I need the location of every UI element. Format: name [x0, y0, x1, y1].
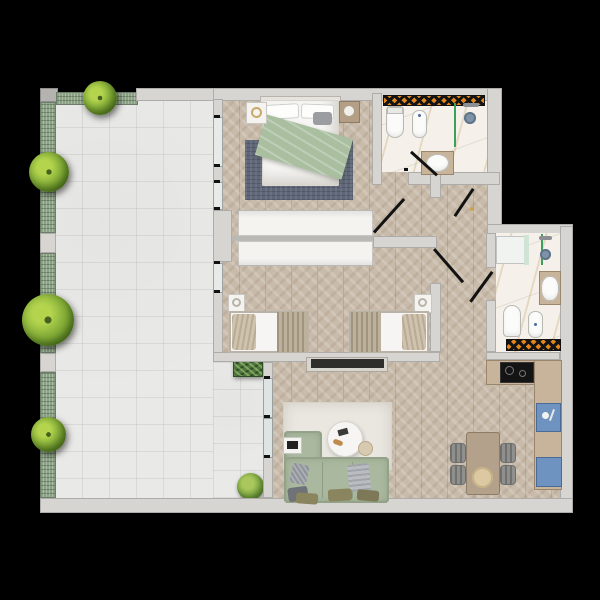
master-nightstand-left-lamp — [251, 107, 262, 118]
sofa-throw — [347, 463, 372, 492]
window-tick-1 — [214, 115, 220, 118]
bathroom1-toilet-tank — [387, 107, 403, 114]
master-cushion-grey — [313, 112, 332, 125]
bathroom2-shower-fixture — [539, 236, 552, 240]
bathroom1-shower-fixture — [463, 103, 479, 107]
kids-nightstand-right-lamp — [418, 298, 427, 307]
sliding-door-panel-lower — [263, 418, 273, 458]
sliding-door-tick-1 — [264, 376, 270, 379]
tree-top — [83, 81, 117, 115]
kids-wardrobe — [238, 241, 373, 266]
bathroom1-shower-head — [464, 112, 476, 124]
bathroom2-bidet-tap — [534, 323, 537, 326]
window-tick-6 — [214, 290, 220, 293]
wall-partition-end — [373, 236, 437, 248]
bathroom1-bidet-tap — [418, 114, 421, 117]
window-master-1 — [213, 117, 223, 167]
window-tick-3 — [214, 180, 220, 183]
sofa-seam-1 — [322, 462, 323, 498]
bathroom2-shower-tray — [496, 236, 526, 264]
sliding-door-tick-2 — [264, 415, 270, 418]
side-pouf — [358, 441, 373, 456]
kids-nightstand-left-lamp — [232, 298, 241, 307]
bathroom1-shower-glass — [454, 103, 456, 147]
tree-left-3 — [31, 417, 66, 452]
kitchen-sink-basin — [542, 412, 549, 419]
dining-chair-4 — [500, 465, 516, 485]
window-kids — [213, 263, 223, 293]
wall-right-upper — [487, 88, 502, 227]
entrance-handle — [470, 207, 474, 211]
sofa-pillow-olive-2 — [328, 488, 353, 501]
bathroom2-toilet — [503, 305, 521, 337]
master-nightstand-right-lamp — [344, 106, 354, 116]
window-tick-5 — [214, 261, 220, 264]
sofa-tray-screen — [287, 441, 298, 449]
bathroom2-sink — [541, 276, 559, 301]
wall-chunk-wardrobe — [213, 210, 232, 262]
dining-chair-1 — [450, 443, 466, 463]
wall-bath2-left-upper — [486, 233, 496, 268]
wall-bath1-left — [372, 93, 382, 185]
wall-kitchen-top — [486, 352, 560, 360]
sofa-pillow-olive-3 — [357, 489, 380, 502]
terrace-wall-top — [136, 88, 215, 101]
terrace-wall-left-gap-2 — [40, 353, 56, 372]
kids-bed-left-blanket — [277, 312, 307, 352]
wall-bath2-left-lower — [486, 300, 496, 352]
window-tick-4 — [214, 207, 220, 210]
sliding-door-tick-3 — [264, 455, 270, 458]
sliding-door-panel-upper — [263, 378, 273, 418]
window-tick-2 — [214, 164, 220, 167]
kitchen-burner-1 — [505, 366, 514, 375]
terrace-tile-floor — [55, 100, 213, 498]
bathroom2-radiator — [506, 339, 561, 351]
round-bush — [237, 473, 264, 500]
kids-bed-left-pillow — [232, 314, 256, 350]
dining-chair-3 — [500, 443, 516, 463]
exterior-notch — [500, 0, 600, 226]
terrace-wall-left-gap-1 — [40, 233, 56, 253]
coffee-table — [327, 421, 363, 457]
door-stop-bath1 — [404, 168, 408, 171]
sofa-pillow-olive-1 — [296, 492, 319, 505]
kitchen-appliance-blue — [536, 457, 562, 487]
kitchen-sink-unit — [536, 403, 561, 432]
floor-plan-canvas — [0, 0, 600, 600]
bathroom2-shower-head — [540, 249, 551, 260]
dining-chair-2 — [450, 465, 466, 485]
window-master-2 — [213, 182, 223, 210]
kids-bed-right-blanket — [351, 312, 381, 352]
tree-left-2 — [22, 294, 74, 346]
bathroom2-shower-glass-pane — [524, 235, 529, 265]
dining-platter — [472, 467, 493, 488]
tree-left-1 — [29, 152, 69, 192]
master-wardrobe — [238, 210, 373, 236]
kids-bed-right-pillow — [402, 314, 426, 350]
tv-screen — [311, 359, 384, 368]
kitchen-burner-2 — [519, 370, 526, 377]
